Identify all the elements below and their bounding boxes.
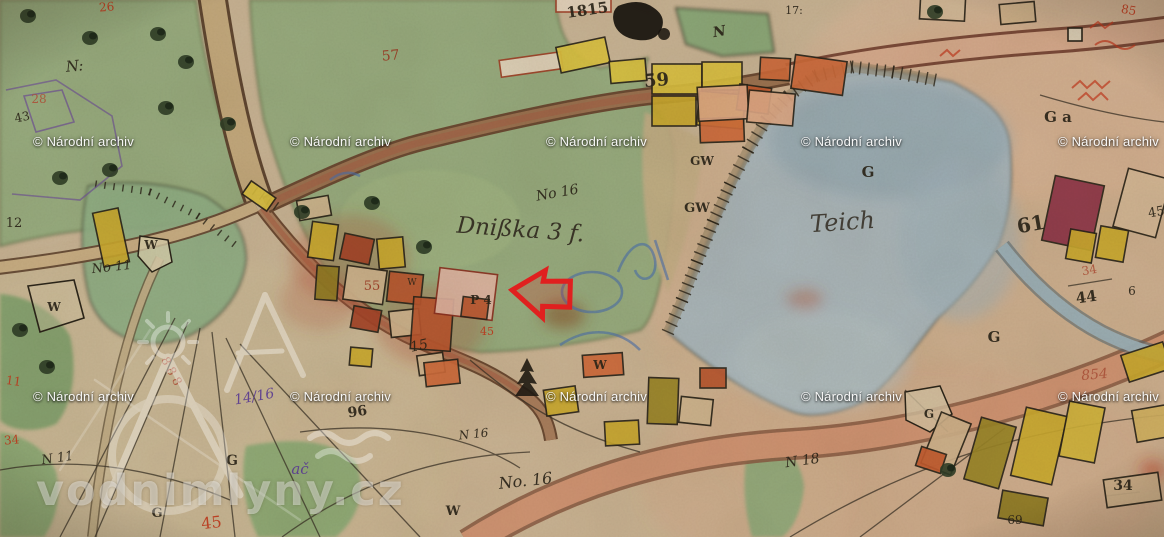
vignette (0, 0, 1164, 537)
map-viewport[interactable]: 26N:284312W57181559N17:85GWGWNo 16Dnißka… (0, 0, 1164, 537)
map-canvas: 26N:284312W57181559N17:85GWGWNo 16Dnißka… (0, 0, 1164, 537)
